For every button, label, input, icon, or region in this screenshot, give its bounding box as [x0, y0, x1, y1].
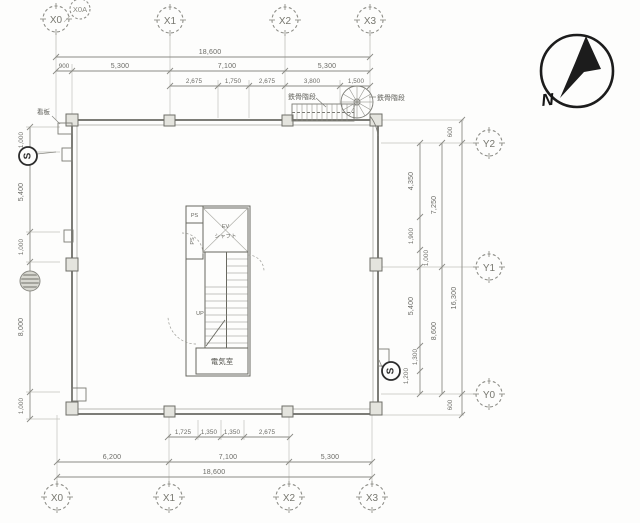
hatched-marker: [20, 271, 40, 291]
dim-bot-sub-1725: 1,725: [175, 429, 192, 436]
dim-top-sub-2675a: 2,675: [186, 78, 203, 85]
dim-bot-sub-1350a: 1,350: [201, 429, 218, 436]
dim-right-total: 16,300: [451, 287, 458, 310]
column: [370, 402, 382, 415]
stair-up-label: UP: [196, 311, 204, 317]
dim-bot-sub-1350b: 1,350: [224, 429, 241, 436]
dim-right-1000: 1,000: [423, 249, 430, 266]
dim-labels-right: 600 4,350 1,900 1,000 7,250 5,400 1,300 …: [403, 126, 458, 410]
dim-bot-7100: 7,100: [219, 454, 238, 461]
grid-label-x2-bottom: X2: [283, 493, 296, 504]
dim-right-1200: 1,200: [403, 367, 410, 384]
dim-top-sub-1500: 1,500: [348, 78, 365, 85]
grid-label-x2-top: X2: [279, 16, 292, 27]
dim-right-7250: 7,250: [431, 196, 438, 215]
dim-left-1000b: 1,000: [18, 238, 25, 255]
ev-shaft-label-line1: EV: [222, 224, 230, 230]
electrical-room-label: 電気室: [211, 356, 234, 366]
north-label: N: [540, 90, 555, 110]
grid-label-y2: Y2: [483, 139, 496, 150]
ev-shaft-label-line2: シャフト: [214, 233, 236, 240]
dim-top-total: 18,600: [199, 49, 222, 56]
column: [164, 406, 175, 417]
dim-top-sub-1750: 1,750: [225, 78, 242, 85]
grid-label-x3-bottom: X3: [366, 493, 379, 504]
dim-bot-5300: 5,300: [321, 454, 340, 461]
dim-left-1000a: 1,000: [18, 131, 25, 148]
grid-label-x0-top: X0: [50, 15, 63, 26]
dim-top-sub-2675b: 2,675: [259, 78, 276, 85]
grid-label-x3-top: X3: [364, 16, 377, 27]
dim-bot-6200: 6,200: [103, 454, 122, 461]
grid-label-y0: Y0: [483, 390, 496, 401]
section-marker-left-label: S: [23, 152, 34, 159]
grid-label-x1-top: X1: [164, 16, 177, 27]
grid-label-y1: Y1: [483, 263, 496, 274]
dim-right-8600: 8,600: [431, 322, 438, 341]
spiral-steel-stair: [341, 86, 378, 136]
column: [66, 402, 78, 415]
dim-right-1300: 1,300: [412, 348, 419, 365]
building-outline: [58, 114, 389, 417]
dim-right-1900: 1,900: [408, 227, 415, 244]
dim-top-900: 900: [59, 63, 70, 70]
column: [370, 114, 382, 126]
grid-label-x1-bottom: X1: [163, 493, 176, 504]
north-compass: N: [540, 35, 613, 110]
core: [168, 206, 264, 376]
dim-labels-top: 18,600 900 5,300 7,100 5,300 2,675 1,750…: [59, 49, 365, 85]
dim-bot-total: 18,600: [203, 469, 226, 476]
dim-top-sub-3800: 3,800: [304, 78, 321, 85]
section-marker-right-label: S: [386, 367, 397, 374]
dim-bot-sub-2675: 2,675: [259, 429, 276, 436]
column: [66, 258, 78, 271]
grid-label-x0a: X0A: [73, 5, 87, 14]
dim-top-5300a: 5,300: [111, 63, 130, 70]
dim-top-5300b: 5,300: [318, 63, 337, 70]
grid-bubbles: [40, 0, 505, 513]
dim-right-600-top: 600: [447, 126, 454, 137]
grid-label-x0-bottom: X0: [51, 493, 64, 504]
column: [370, 258, 382, 271]
floor-plan-sheet: 18,600 900 5,300 7,100 5,300 2,675 1,750…: [0, 0, 640, 523]
signboard-label: 看板: [37, 107, 51, 116]
ps-top-label: PS: [191, 213, 199, 219]
wall-step-bottom-left: [72, 388, 86, 401]
dim-left-8000: 8,000: [18, 318, 25, 337]
dim-right-5400: 5,400: [408, 297, 415, 316]
north-arrow-icon: [560, 36, 601, 98]
dim-right-600-bottom: 600: [447, 399, 454, 410]
dim-left-5400: 5,400: [18, 183, 25, 202]
floor-plan-drawing: 18,600 900 5,300 7,100 5,300 2,675 1,750…: [0, 0, 640, 523]
column: [282, 406, 293, 417]
ps-left-label: PS: [190, 237, 196, 245]
dim-right-4350: 4,350: [408, 172, 415, 191]
steel-stair-label-right: 鉄骨階段: [377, 93, 405, 102]
column: [164, 115, 175, 126]
dim-top-7100: 7,100: [218, 63, 237, 70]
steel-stair-label-left: 鉄骨階段: [288, 92, 316, 101]
column: [282, 115, 293, 126]
stair-break-line: [206, 320, 225, 346]
dim-left-1000c: 1,000: [18, 397, 25, 414]
wall-recess-left: [62, 148, 72, 161]
